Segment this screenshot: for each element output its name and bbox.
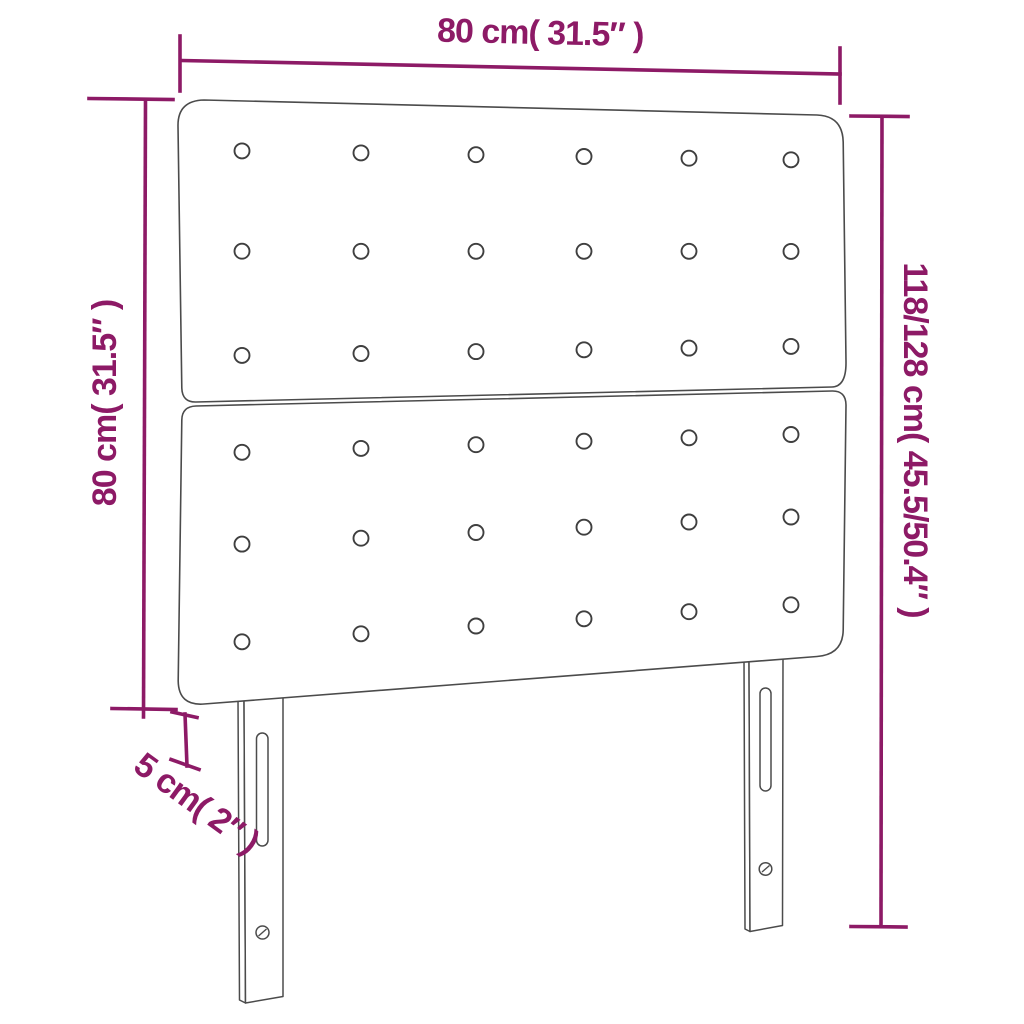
total-height-dimension-line: [881, 117, 882, 926]
tufting-button: [577, 342, 592, 357]
tufting-button: [235, 244, 250, 259]
thickness-connector: [185, 714, 187, 766]
total-height-dimension-bottom-tick: [851, 927, 906, 928]
tufting-button: [784, 244, 799, 259]
tufting-button: [469, 525, 484, 540]
tufting-button: [469, 344, 484, 359]
tufting-button: [354, 531, 369, 546]
tufting-button: [235, 537, 250, 552]
tufting-button: [235, 445, 250, 460]
tufting-button: [469, 244, 484, 259]
tufting-button: [354, 626, 369, 641]
tufting-button: [682, 151, 697, 166]
tufting-button: [682, 604, 697, 619]
headboard-bottom-panel: [178, 391, 846, 704]
tufting-button: [354, 346, 369, 361]
width-dimension-label: 80 cm( 31.5″ ): [437, 12, 644, 55]
tufting-button: [682, 430, 697, 445]
height-dimension-label: 80 cm( 31.5″ ): [86, 300, 124, 506]
height-dimension-top-tick: [89, 99, 173, 100]
right-leg-slot: [760, 688, 771, 791]
headboard-top-panel: [178, 100, 846, 402]
tufting-button: [784, 152, 799, 167]
tufting-button: [682, 341, 697, 356]
tufting-button: [577, 434, 592, 449]
tufting-button: [577, 244, 592, 259]
width-dimension: 80 cm( 31.5″ ): [180, 12, 840, 103]
headboard-dimension-diagram: 80 cm( 31.5″ ) 80 cm( 31.5″ ) 118/128 cm…: [0, 0, 1024, 1024]
tufting-button: [577, 149, 592, 164]
tufting-button: [469, 147, 484, 162]
tufting-button: [354, 145, 369, 160]
tufting-button: [235, 143, 250, 158]
width-dimension-line: [182, 61, 840, 75]
tufting-button: [354, 441, 369, 456]
tufting-button: [577, 611, 592, 626]
tufting-button: [682, 515, 697, 530]
tufting-button: [354, 244, 369, 259]
tufting-button: [784, 427, 799, 442]
total-height-dimension-label: 118/128 cm( 45.5/50.4″ ): [896, 262, 934, 617]
tufting-button: [235, 348, 250, 363]
total-height-dimension-top-tick: [851, 116, 908, 117]
right-leg: [744, 657, 783, 932]
tufting-button: [784, 597, 799, 612]
tufting-button: [682, 244, 697, 259]
tufting-button: [577, 520, 592, 535]
tufting-button: [784, 339, 799, 354]
panel-height-dimension: 80 cm( 31.5″ ): [86, 99, 176, 718]
tufting-button: [235, 634, 250, 649]
height-dimension-bottom-tick: [112, 709, 176, 710]
height-dimension-line: [144, 100, 146, 717]
tufting-button: [784, 510, 799, 525]
total-height-dimension: 118/128 cm( 45.5/50.4″ ): [851, 116, 934, 927]
diagram-canvas: 80 cm( 31.5″ ) 80 cm( 31.5″ ) 118/128 cm…: [0, 0, 1024, 1024]
tufting-button: [469, 437, 484, 452]
tufting-button: [469, 619, 484, 634]
